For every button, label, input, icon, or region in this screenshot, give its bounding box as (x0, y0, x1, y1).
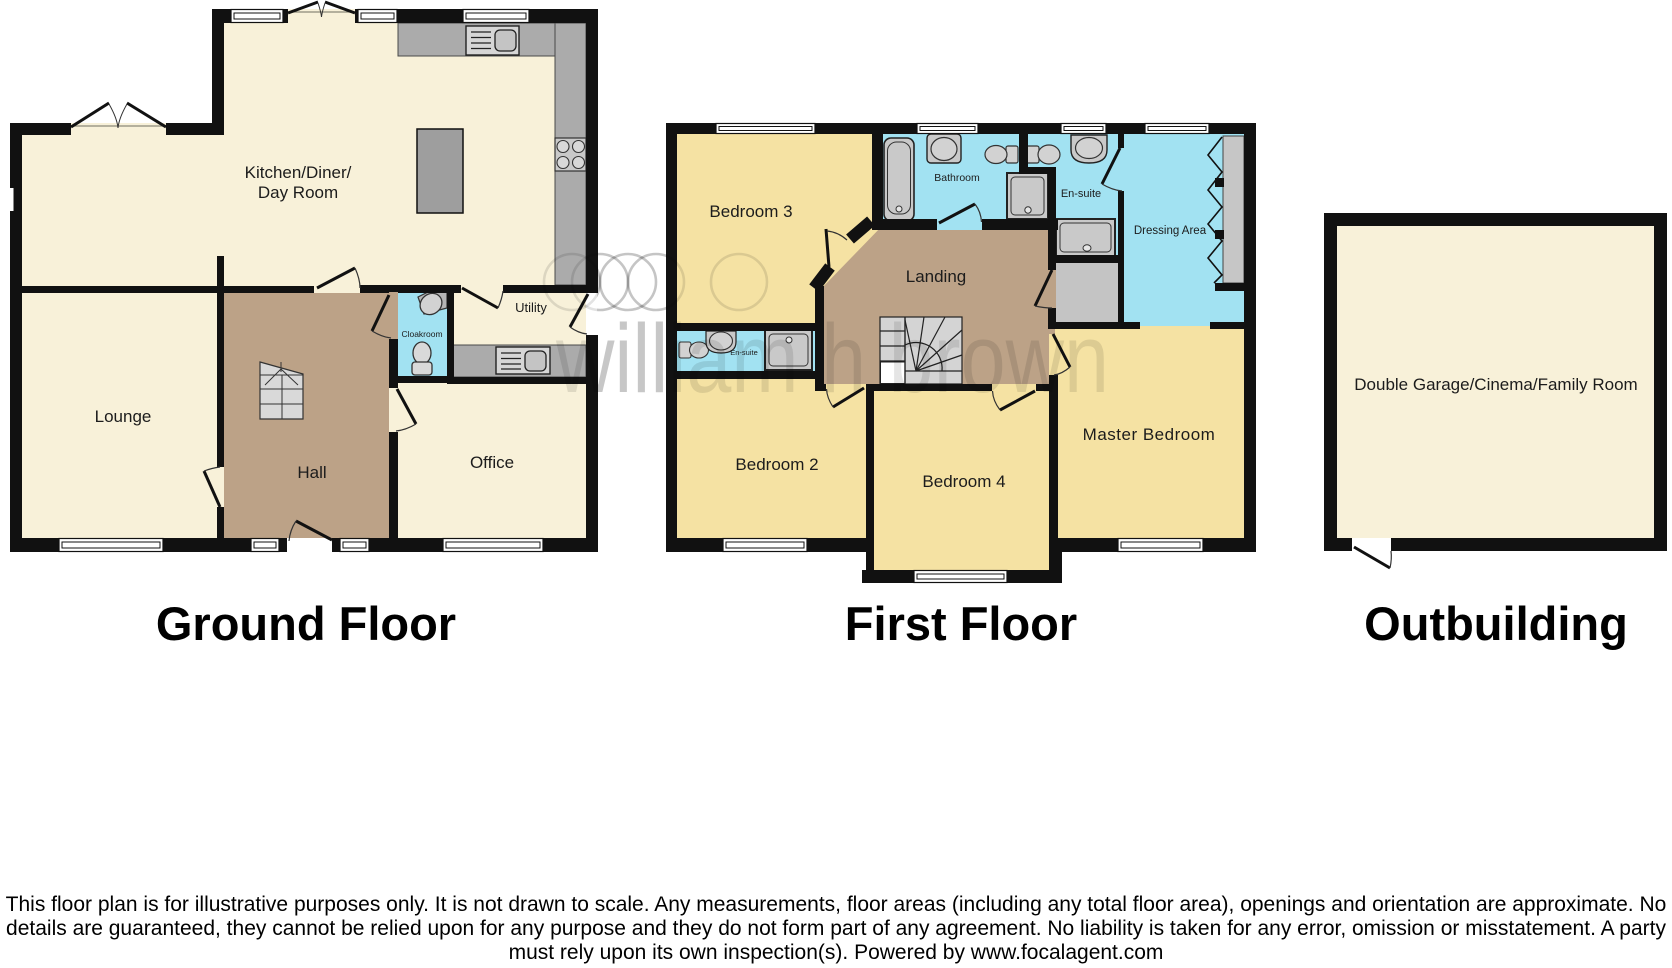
svg-text:Utility: Utility (515, 300, 547, 315)
svg-text:En-suite: En-suite (730, 348, 758, 357)
svg-text:Kitchen/Diner/: Kitchen/Diner/ (245, 163, 352, 182)
svg-text:must rely upon its own inspect: must rely upon its own inspection(s). Po… (509, 941, 1164, 964)
svg-text:This floor plan is for illustr: This floor plan is for illustrative purp… (6, 893, 1667, 916)
svg-text:Day Room: Day Room (258, 183, 338, 202)
svg-text:Bedroom 2: Bedroom 2 (735, 455, 818, 474)
svg-text:Cloakroom: Cloakroom (401, 329, 442, 339)
svg-text:Bedroom 3: Bedroom 3 (709, 202, 792, 221)
svg-text:Lounge: Lounge (95, 407, 152, 426)
svg-text:Master Bedroom: Master Bedroom (1083, 425, 1216, 444)
svg-text:First Floor: First Floor (845, 597, 1077, 650)
svg-text:Dressing Area: Dressing Area (1134, 225, 1207, 237)
svg-text:Office: Office (470, 453, 514, 472)
svg-text:Landing: Landing (906, 267, 967, 286)
svg-text:Bathroom: Bathroom (934, 172, 980, 184)
svg-text:Double Garage/Cinema/Family Ro: Double Garage/Cinema/Family Room (1354, 375, 1637, 394)
svg-text:Ground Floor: Ground Floor (156, 597, 456, 650)
svg-text:Bedroom 4: Bedroom 4 (922, 472, 1005, 491)
svg-text:En-suite: En-suite (1061, 188, 1101, 200)
svg-text:Hall: Hall (297, 463, 326, 482)
svg-text:details are guaranteed, they c: details are guaranteed, they cannot be r… (6, 917, 1666, 940)
svg-text:Outbuilding: Outbuilding (1364, 597, 1628, 650)
